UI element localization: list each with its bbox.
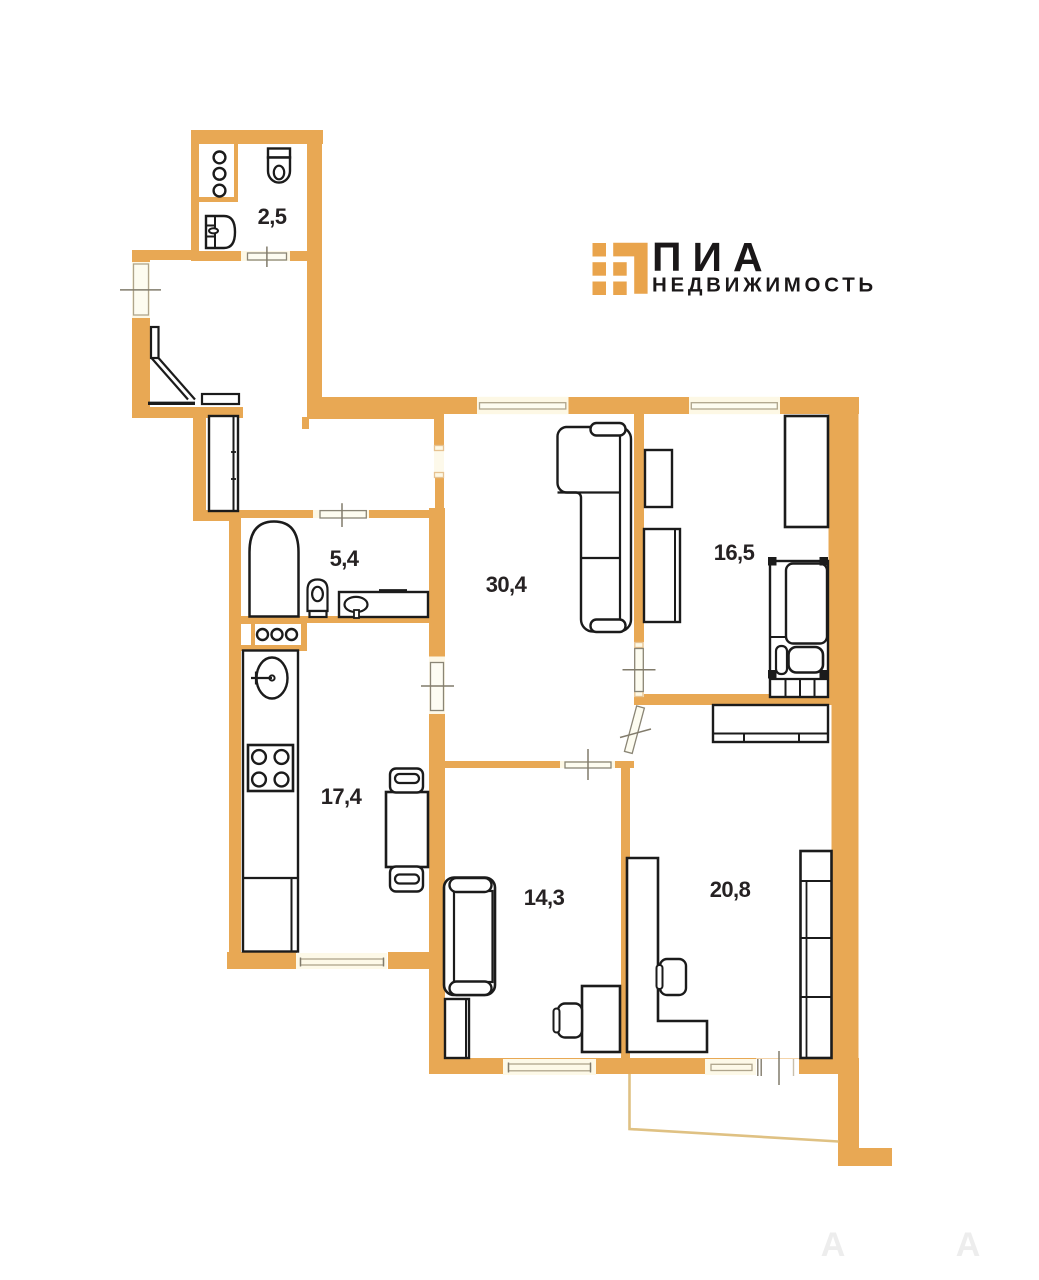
svg-text:НЕДВИЖИМОСТЬ: НЕДВИЖИМОСТЬ (652, 274, 877, 297)
svg-text:16,5: 16,5 (714, 540, 755, 565)
svg-text:5,4: 5,4 (330, 546, 360, 571)
svg-text:2,5: 2,5 (258, 204, 287, 229)
svg-text:A: A (821, 1226, 846, 1264)
svg-text:17,4: 17,4 (321, 784, 363, 809)
svg-text:20,8: 20,8 (710, 877, 751, 902)
svg-text:A: A (956, 1226, 981, 1264)
svg-text:14,3: 14,3 (524, 885, 565, 910)
svg-text:30,4: 30,4 (486, 572, 528, 597)
